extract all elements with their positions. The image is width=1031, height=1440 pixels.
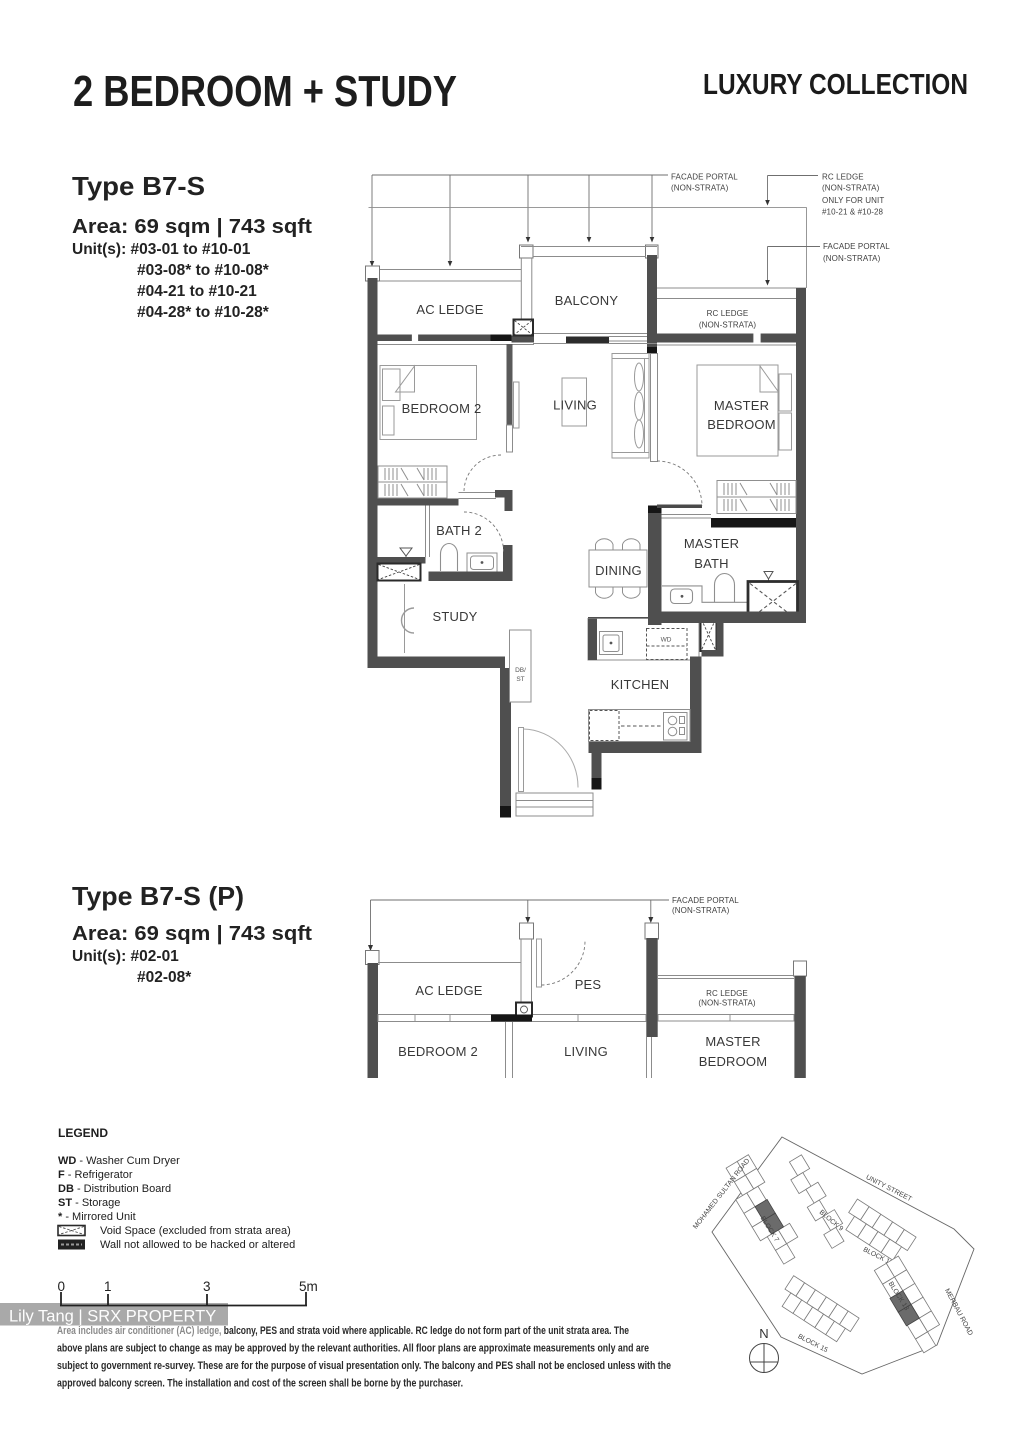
svg-text:PES: PES <box>575 977 602 992</box>
svg-text:Lily Tang | SRX PROPERTY: Lily Tang | SRX PROPERTY <box>9 1308 216 1326</box>
svg-text:Type B7-S (P): Type B7-S (P) <box>72 881 244 911</box>
svg-text:(NON-STRATA): (NON-STRATA) <box>822 183 880 192</box>
svg-text:MASTER: MASTER <box>714 398 769 413</box>
svg-text:MASTER: MASTER <box>684 536 739 551</box>
svg-text:Type B7-S: Type B7-S <box>72 171 205 201</box>
svg-text:ST - Storage: ST - Storage <box>58 1197 120 1209</box>
svg-text:RC LEDGE: RC LEDGE <box>706 989 748 998</box>
svg-text:KITCHEN: KITCHEN <box>611 677 669 692</box>
svg-text:#02-08*: #02-08* <box>137 969 192 986</box>
svg-text:ONLY FOR UNIT: ONLY FOR UNIT <box>822 196 884 205</box>
svg-text:MASTER: MASTER <box>705 1034 760 1049</box>
svg-text:LUXURY COLLECTION: LUXURY COLLECTION <box>703 69 968 101</box>
svg-text:DB - Distribution Board: DB - Distribution Board <box>58 1183 171 1195</box>
svg-text:AC LEDGE: AC LEDGE <box>415 983 482 998</box>
svg-text:(NON-STRATA): (NON-STRATA) <box>699 321 757 330</box>
svg-text:RC LEDGE: RC LEDGE <box>707 309 749 318</box>
svg-text:subject to government re-surve: subject to government re-survey. These a… <box>57 1360 671 1372</box>
svg-text:FACADE PORTAL: FACADE PORTAL <box>671 173 738 182</box>
svg-text:#10-21 & #10-28: #10-21 & #10-28 <box>822 208 884 217</box>
svg-text:Area: 69 sqm | 743 sqft: Area: 69 sqm | 743 sqft <box>72 923 312 945</box>
svg-text:BEDROOM: BEDROOM <box>707 417 776 432</box>
svg-text:N: N <box>759 1326 768 1341</box>
svg-text:(NON-STRATA): (NON-STRATA) <box>823 254 881 263</box>
svg-text:LIVING: LIVING <box>564 1044 608 1059</box>
svg-text:LEGEND: LEGEND <box>58 1126 108 1140</box>
svg-text:F - Refrigerator: F - Refrigerator <box>58 1169 133 1181</box>
svg-text:DB/: DB/ <box>515 667 526 674</box>
svg-text:0: 0 <box>58 1279 66 1294</box>
svg-text:Area includes air conditioner: Area includes air conditioner (AC) ledge… <box>57 1325 629 1337</box>
svg-text:* - Mirrored Unit: * - Mirrored Unit <box>58 1211 136 1223</box>
svg-text:WD - Washer Cum Dryer: WD - Washer Cum Dryer <box>58 1155 180 1167</box>
svg-text:1: 1 <box>104 1279 112 1294</box>
svg-text:2 BEDROOM + STUDY: 2 BEDROOM + STUDY <box>73 67 457 116</box>
svg-text:Unit(s): #03-01 to #10-01: Unit(s): #03-01 to #10-01 <box>72 241 251 258</box>
svg-text:BEDROOM 2: BEDROOM 2 <box>398 1044 478 1059</box>
svg-text:#04-21 to #10-21: #04-21 to #10-21 <box>137 283 257 300</box>
svg-text:MERBAU ROAD: MERBAU ROAD <box>943 1288 974 1337</box>
svg-text:BEDROOM: BEDROOM <box>699 1054 768 1069</box>
svg-text:approved balcony screen. The i: approved balcony screen. The installatio… <box>57 1378 463 1390</box>
svg-text:LIVING: LIVING <box>553 398 597 413</box>
svg-text:Unit(s): #02-01: Unit(s): #02-01 <box>72 948 179 965</box>
svg-text:STUDY: STUDY <box>432 609 477 624</box>
svg-text:Wall not allowed to be hacked: Wall not allowed to be hacked or altered <box>100 1239 295 1251</box>
svg-text:3: 3 <box>203 1279 211 1294</box>
svg-text:above plans are subject to cha: above plans are subject to change as may… <box>57 1343 649 1355</box>
svg-text:RC LEDGE: RC LEDGE <box>822 173 864 182</box>
svg-text:BEDROOM 2: BEDROOM 2 <box>402 401 482 416</box>
svg-text:BATH 2: BATH 2 <box>436 523 482 538</box>
svg-text:UNITY STREET: UNITY STREET <box>865 1174 914 1203</box>
svg-text:BATH: BATH <box>694 556 729 571</box>
svg-text:ST: ST <box>516 676 524 683</box>
svg-text:DINING: DINING <box>595 563 642 578</box>
svg-text:Void Space (excluded from stra: Void Space (excluded from strata area) <box>100 1225 291 1237</box>
svg-text:WD: WD <box>661 637 672 644</box>
svg-text:BALCONY: BALCONY <box>555 293 619 308</box>
svg-text:(NON-STRATA): (NON-STRATA) <box>671 183 729 192</box>
svg-text:FACADE PORTAL: FACADE PORTAL <box>823 242 890 251</box>
svg-text:AC LEDGE: AC LEDGE <box>416 302 483 317</box>
svg-text:Area: 69 sqm | 743 sqft: Area: 69 sqm | 743 sqft <box>72 216 312 238</box>
svg-text:FACADE PORTAL: FACADE PORTAL <box>672 896 739 905</box>
svg-text:5m: 5m <box>299 1279 318 1294</box>
svg-text:#03-08* to #10-08*: #03-08* to #10-08* <box>137 262 270 279</box>
svg-text:#04-28* to #10-28*: #04-28* to #10-28* <box>137 304 270 321</box>
svg-text:(NON-STRATA): (NON-STRATA) <box>672 906 730 915</box>
svg-text:(NON-STRATA): (NON-STRATA) <box>698 999 756 1008</box>
